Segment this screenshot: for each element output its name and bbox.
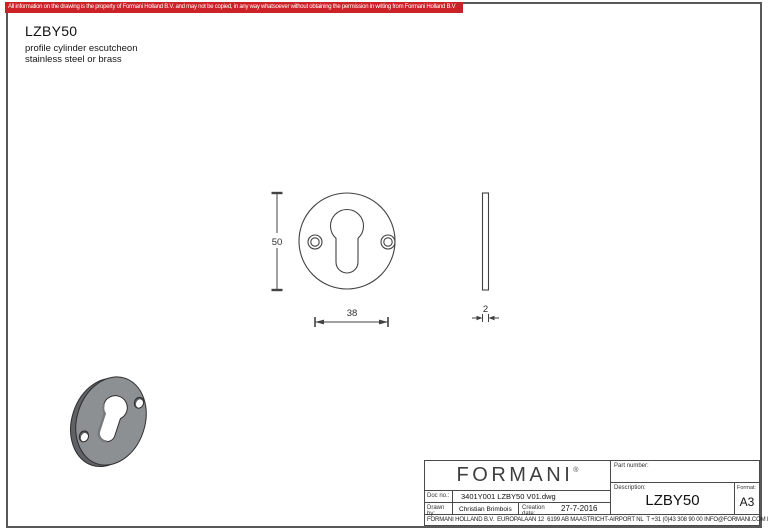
part-description-text: profile cylinder escutcheon stainless st… — [25, 43, 137, 65]
part-code-title: LZBY50 — [25, 23, 77, 39]
description-label: Description: — [614, 485, 646, 491]
part-number-label: Part number: — [611, 461, 759, 483]
creation-date-value: 27-7-2016 — [559, 503, 611, 515]
page-frame-border — [6, 2, 762, 528]
formani-logo-cell: FORMANI® — [425, 461, 611, 491]
formani-logo: FORMANI® — [457, 464, 579, 487]
doc-no-value: 3401Y001 LZBY50 V01.dwg — [453, 491, 611, 503]
format-cell: Format: A3 — [735, 483, 759, 515]
registered-mark: ® — [573, 467, 578, 474]
part-material-line2: stainless steel or brass — [25, 54, 137, 65]
disclaimer-text: All information on the drawing is the pr… — [8, 4, 455, 10]
disclaimer-banner: All information on the drawing is the pr… — [5, 2, 463, 13]
drawn-by-value: Christian Brimbois — [453, 503, 519, 515]
format-label: Format: — [737, 485, 756, 491]
title-block: FORMANI® Doc no.: 3401Y001 LZBY50 V01.dw… — [424, 460, 760, 526]
formani-logo-text: FORMANI — [457, 464, 574, 486]
description-cell: Description: LZBY50 — [611, 483, 735, 515]
company-address-row: FORMANI HOLLAND B.V. EUROPALAAN 12 6199 … — [425, 515, 759, 526]
drawn-by-label: Drawn by: — [425, 503, 453, 515]
creation-date-label: Creation date: — [519, 503, 559, 515]
doc-no-label: Doc no.: — [425, 491, 453, 503]
description-value: LZBY50 — [611, 492, 734, 509]
format-value: A3 — [735, 495, 759, 509]
drawing-sheet: All information on the drawing is the pr… — [0, 0, 768, 532]
part-description-line1: profile cylinder escutcheon — [25, 43, 137, 54]
